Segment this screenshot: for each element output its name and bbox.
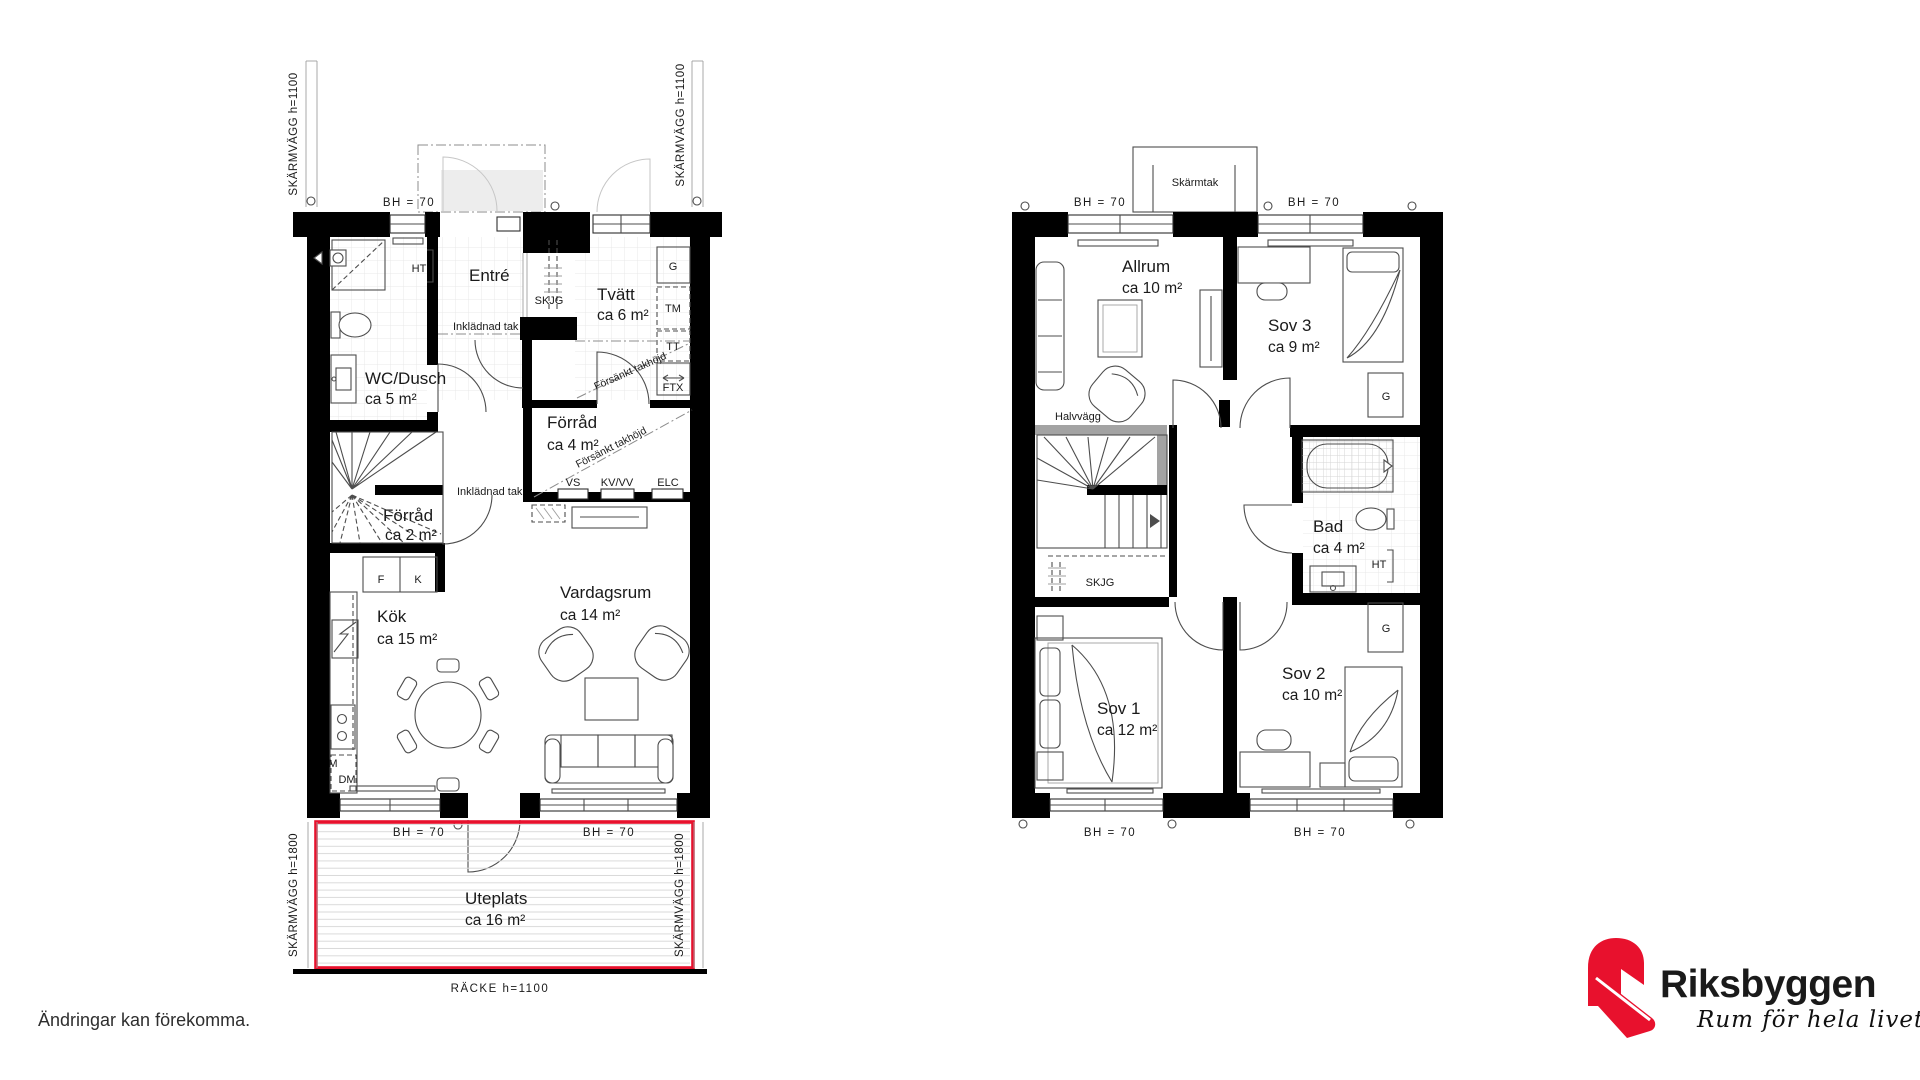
room-area-sov1: ca 12 m²	[1097, 722, 1157, 739]
label-tt: TT	[666, 341, 680, 353]
livingroom-furniture	[533, 620, 696, 793]
label-dm: DM	[338, 774, 355, 786]
ground-floor-doors	[438, 340, 649, 872]
dining-table	[396, 659, 500, 791]
label-bh70-top: BH = 70	[383, 197, 435, 209]
label-bh70-f2-bottom-left: BH = 70	[1084, 827, 1136, 839]
logo-brand-text: Riksbyggen	[1660, 963, 1876, 1006]
room-label-sov3: Sov 3	[1268, 316, 1311, 335]
label-skjg-f2: SKJG	[1086, 577, 1115, 589]
label-bh70-f2-top-left: BH = 70	[1074, 197, 1126, 209]
label-halvvagg: Halvvägg	[1055, 411, 1101, 423]
room-area-forrad2: ca 2 m²	[385, 527, 437, 544]
room-label-forrad4: Förråd	[547, 413, 597, 432]
label-ht: HT	[412, 263, 427, 275]
stair-upper	[1037, 435, 1167, 548]
room-area-allrum: ca 10 m²	[1122, 280, 1182, 297]
label-skarmtak: Skärmtak	[1172, 177, 1219, 189]
label-vs: VS	[566, 477, 581, 489]
room-label-allrum: Allrum	[1122, 257, 1170, 276]
room-area-sov2: ca 10 m²	[1282, 687, 1342, 704]
label-m: M	[328, 758, 337, 770]
label-kvvv: KV/VV	[601, 477, 634, 489]
disclaimer-text: Ändringar kan förekomma.	[38, 1010, 250, 1030]
label-g: G	[669, 261, 678, 273]
room-area-vardagsrum: ca 14 m²	[560, 607, 620, 624]
label-inkladnad-tak-1: Inklädnad tak	[453, 321, 519, 333]
ground-floor-plan: SKÄRMVÄGG h=1100 SKÄRMVÄGG h=1100 BH = 7…	[288, 61, 722, 995]
riksbyggen-logo-icon	[1588, 938, 1655, 1038]
label-elc: ELC	[657, 477, 678, 489]
label-bh70-bottom-left: BH = 70	[393, 827, 445, 839]
label-g-sov3: G	[1382, 391, 1391, 403]
room-area-bad: ca 4 m²	[1313, 540, 1365, 557]
label-skarmvagg-1800-right: SKÄRMVÄGG h=1800	[674, 833, 686, 957]
room-label-entre: Entré	[469, 266, 510, 285]
room-label-uteplats: Uteplats	[465, 889, 527, 908]
room-label-sov1: Sov 1	[1097, 699, 1140, 718]
label-inkladnad-tak-2: Inklädnad tak	[457, 486, 523, 498]
upper-floor-plan: Skärmtak BH = 70 BH = 70 Allrum ca 10 m²…	[1012, 147, 1443, 839]
room-label-wc: WC/Dusch	[365, 369, 446, 388]
railing-line	[293, 969, 707, 974]
room-area-kok: ca 15 m²	[377, 631, 437, 648]
label-k: K	[414, 574, 422, 586]
room-area-sov3: ca 9 m²	[1268, 339, 1320, 356]
ground-floor-exterior-top	[306, 61, 703, 212]
room-area-uteplats: ca 16 m²	[465, 912, 525, 929]
label-skarmvagg-1800-left: SKÄRMVÄGG h=1800	[288, 833, 300, 957]
logo-tagline-text: Rum för hela livet	[1696, 1007, 1920, 1033]
room-area-tvatt: ca 6 m²	[597, 307, 649, 324]
label-bh70-f2-top-right: BH = 70	[1288, 197, 1340, 209]
floorplan-page: SKÄRMVÄGG h=1100 SKÄRMVÄGG h=1100 BH = 7…	[0, 0, 1920, 1080]
floorplan-drawing: SKÄRMVÄGG h=1100 SKÄRMVÄGG h=1100 BH = 7…	[0, 0, 1920, 1080]
label-bh70-bottom-right: BH = 70	[583, 827, 635, 839]
label-ftx: FTX	[663, 382, 684, 394]
room-area-wc: ca 5 m²	[365, 391, 417, 408]
label-g-sov2: G	[1382, 623, 1391, 635]
label-bh70-f2-bottom-right: BH = 70	[1294, 827, 1346, 839]
label-skjg: SKJG	[535, 295, 564, 307]
room-label-bad: Bad	[1313, 517, 1343, 536]
label-racke: RÄCKE h=1100	[451, 983, 550, 995]
label-ht-f2: HT	[1372, 559, 1387, 571]
room-label-kok: Kök	[377, 607, 407, 626]
room-label-vardagsrum: Vardagsrum	[560, 583, 651, 602]
kitchen-fixtures	[330, 557, 437, 793]
room-label-tvatt: Tvätt	[597, 285, 635, 304]
label-skarmvagg-1100-right: SKÄRMVÄGG h=1100	[675, 63, 687, 186]
riksbyggen-logo: Riksbyggen Rum för hela livet	[1588, 938, 1920, 1038]
label-skarmvagg-1100-left: SKÄRMVÄGG h=1100	[288, 72, 300, 195]
room-label-forrad2: Förråd	[383, 506, 433, 525]
room-label-sov2: Sov 2	[1282, 664, 1325, 683]
label-tm: TM	[665, 303, 681, 315]
label-f: F	[378, 574, 385, 586]
sov3-furniture	[1238, 247, 1403, 417]
